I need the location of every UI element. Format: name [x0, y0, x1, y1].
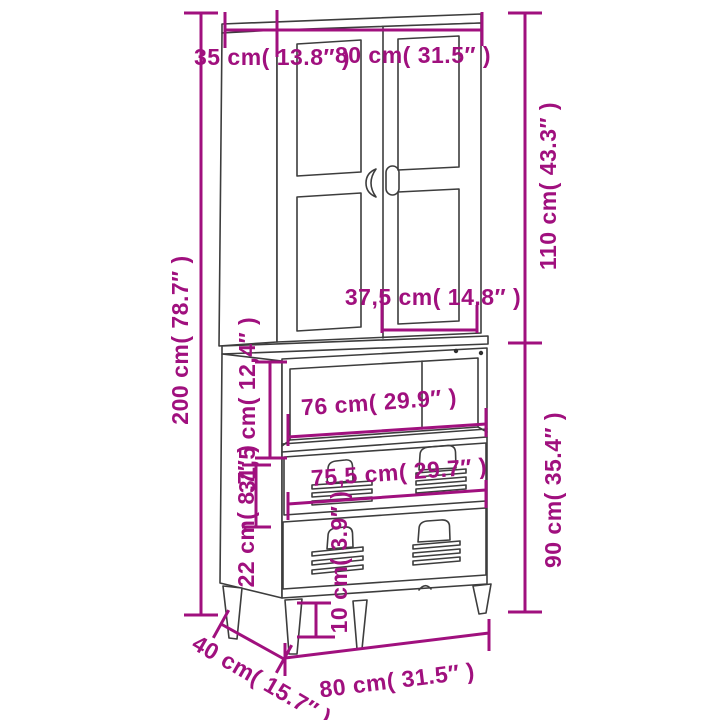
dim-label-door-width: 37,5 cm( 14.8″ )	[345, 284, 521, 310]
dimension-lower-section-height: 90 cm( 35.4″ )	[508, 343, 566, 612]
dim-label-total-height: 200 cm( 78.7″ )	[167, 255, 193, 424]
dimension-bottom-depth: 40 cm( 15.7″ )	[188, 610, 336, 720]
dim-label-top-depth: 35 cm( 13.8″ )	[194, 44, 350, 70]
dim-label-bottom-depth: 40 cm( 15.7″ )	[188, 630, 336, 720]
leg-front-right	[473, 584, 491, 614]
dim-label-lower-section-height: 90 cm( 35.4″ )	[540, 412, 566, 568]
dim-label-bottom-width: 80 cm( 31.5″ )	[318, 658, 476, 703]
highboard-dimension-diagram: 200 cm( 78.7″ ) 35 cm( 13.8″ ) 80 cm( 31…	[0, 0, 720, 720]
dimension-total-height: 200 cm( 78.7″ )	[167, 13, 218, 615]
dim-label-upper-section-height: 110 cm( 43.3″ )	[535, 102, 561, 270]
screw-dot-right	[479, 351, 483, 355]
dimension-line	[508, 343, 542, 612]
dim-label-drawer-front-height: 22 cm( 8.7″ )	[233, 445, 259, 588]
dim-label-leg-height: 10 cm( 3.9″ )	[326, 491, 352, 634]
dimension-diagram-canvas: 200 cm( 78.7″ ) 35 cm( 13.8″ ) 80 cm( 31…	[0, 0, 720, 720]
leg-front-left	[285, 599, 302, 654]
screw-dot-left	[454, 349, 458, 353]
dim-label-top-width: 80 cm( 31.5″ )	[335, 42, 491, 68]
upper-cabinet-left-side	[219, 30, 277, 346]
leg-back-right	[353, 600, 367, 649]
